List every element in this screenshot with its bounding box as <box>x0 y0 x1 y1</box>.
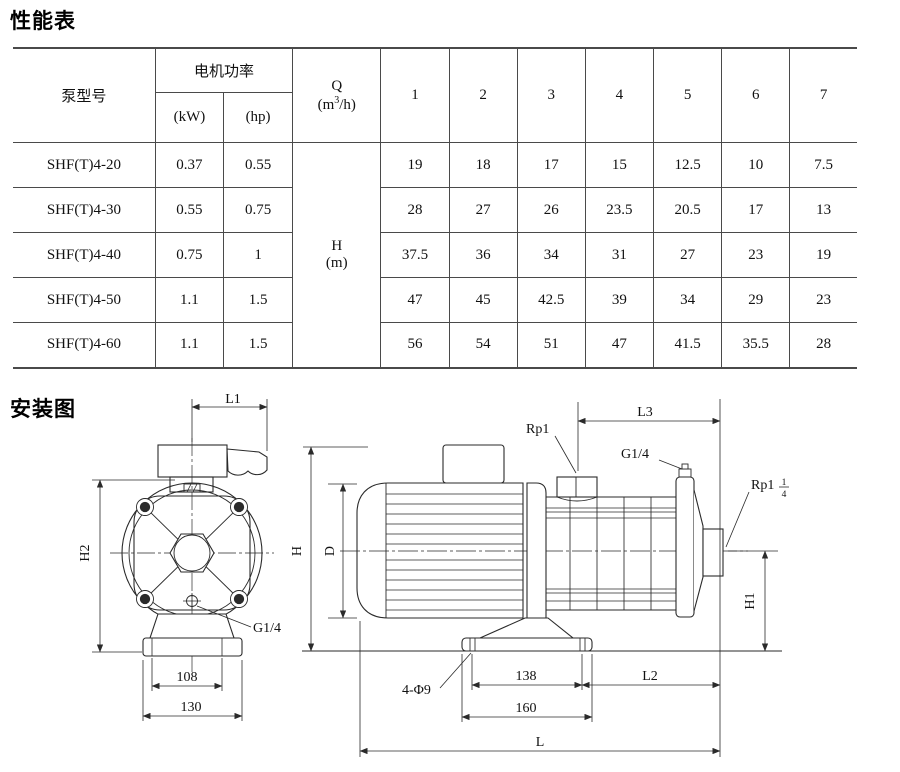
head-cell: 34 <box>653 278 721 323</box>
head-cell: 56 <box>381 323 449 368</box>
model-cell: SHF(T)4-60 <box>13 323 155 368</box>
dim-label-h1: H1 <box>743 592 758 609</box>
front-pedestal <box>150 614 234 638</box>
pump-front-view <box>110 438 274 672</box>
front-base-plate <box>143 638 242 656</box>
datasheet-page: { "performance": { "title": "性能表", "tabl… <box>0 0 900 772</box>
dim-label-g14-side: G1/4 <box>621 447 649 462</box>
dim-label-l2: L2 <box>642 669 658 684</box>
front-terminal-box <box>158 445 227 477</box>
head-cell: 42.5 <box>517 278 585 323</box>
hp-cell: 0.75 <box>223 188 292 233</box>
flow-col-header: 4 <box>585 48 653 143</box>
head-cell: 45 <box>449 278 517 323</box>
flow-q-header: Q (m3/h) <box>293 48 381 143</box>
side-suction-port <box>557 477 597 501</box>
side-base-plate <box>462 638 592 651</box>
side-pump-casing <box>546 497 678 610</box>
table-row: SHF(T)4-300.550.7528272623.520.51713 <box>13 188 857 233</box>
dim-label-rp1-quarter: Rp1 1 4 <box>751 478 789 500</box>
side-end-cover <box>676 477 694 617</box>
side-g14-plug <box>679 464 691 477</box>
head-cell: 27 <box>653 233 721 278</box>
head-cell: 34 <box>517 233 585 278</box>
table-row: SHF(T)4-400.75137.5363431272319 <box>13 233 857 278</box>
head-cell: 19 <box>790 233 857 278</box>
head-cell: 15 <box>585 143 653 188</box>
dim-label-l1: L1 <box>225 392 241 407</box>
kw-cell: 1.1 <box>155 278 223 323</box>
kw-cell: 1.1 <box>155 323 223 368</box>
head-cell: 29 <box>722 278 790 323</box>
model-cell: SHF(T)4-40 <box>13 233 155 278</box>
dim-label-138: 138 <box>516 669 537 684</box>
head-cell: 12.5 <box>653 143 721 188</box>
flow-col-header: 3 <box>517 48 585 143</box>
head-cell: 54 <box>449 323 517 368</box>
head-cell: 27 <box>449 188 517 233</box>
flow-col-header: 5 <box>653 48 721 143</box>
hp-cell: 1.5 <box>223 278 292 323</box>
flow-col-header: 7 <box>790 48 857 143</box>
dim-label-108: 108 <box>177 670 198 685</box>
side-terminal-box <box>443 445 504 483</box>
dim-label-4-phi9: 4-Φ9 <box>402 683 431 698</box>
flow-col-header: 6 <box>722 48 790 143</box>
head-cell: 18 <box>449 143 517 188</box>
head-cell: 17 <box>722 188 790 233</box>
head-cell: 51 <box>517 323 585 368</box>
pump-side-view <box>302 445 782 651</box>
model-column-header: 泵型号 <box>13 48 155 143</box>
head-cell: 17 <box>517 143 585 188</box>
flow-col-header: 1 <box>381 48 449 143</box>
head-cell: 28 <box>790 323 857 368</box>
dim-label-l3: L3 <box>637 405 653 420</box>
dim-label-h2: H2 <box>78 544 93 561</box>
kw-cell: 0.75 <box>155 233 223 278</box>
table-row: SHF(T)4-501.11.5474542.539342923 <box>13 278 857 323</box>
kw-cell: 0.55 <box>155 188 223 233</box>
kw-cell: 0.37 <box>155 143 223 188</box>
svg-text:Rp1: Rp1 <box>751 478 774 493</box>
head-cell: 41.5 <box>653 323 721 368</box>
head-cell: 39 <box>585 278 653 323</box>
svg-text:1: 1 <box>782 478 787 488</box>
side-motor-body <box>357 483 523 618</box>
side-adapter-flange <box>527 483 546 618</box>
side-motor-fins <box>386 494 523 610</box>
head-cell: 47 <box>585 323 653 368</box>
installation-diagram: L1 H2 G1/4 108 130 <box>0 390 900 772</box>
q-symbol: Q <box>331 78 342 94</box>
head-cell: 23.5 <box>585 188 653 233</box>
side-discharge-taper <box>694 490 703 611</box>
head-cell: 13 <box>790 188 857 233</box>
dim-label-h: H <box>290 546 305 556</box>
head-cell: 28 <box>381 188 449 233</box>
dim-label-l: L <box>536 735 545 750</box>
hp-cell: 1 <box>223 233 292 278</box>
side-foot <box>480 618 573 638</box>
head-cell: 20.5 <box>653 188 721 233</box>
model-cell: SHF(T)4-30 <box>13 188 155 233</box>
dim-label-160: 160 <box>516 701 537 716</box>
head-cell: 23 <box>722 233 790 278</box>
kw-header: (kW) <box>155 93 223 143</box>
head-cell: 23 <box>790 278 857 323</box>
head-cell: 36 <box>449 233 517 278</box>
motor-power-header: 电机功率 <box>155 48 292 93</box>
model-cell: SHF(T)4-20 <box>13 143 155 188</box>
hp-cell: 0.55 <box>223 143 292 188</box>
table-row: SHF(T)4-200.370.55H(m)1918171512.5107.5 <box>13 143 857 188</box>
head-cell: 35.5 <box>722 323 790 368</box>
svg-text:4: 4 <box>782 490 787 500</box>
front-center-hex-nut <box>170 534 214 572</box>
table-row: SHF(T)4-601.11.55654514741.535.528 <box>13 323 857 368</box>
performance-table: 泵型号 电机功率 Q (m3/h) 1234567 (kW) (hp) SHF(… <box>13 47 857 369</box>
head-cell: 26 <box>517 188 585 233</box>
header-row-1: 泵型号 电机功率 Q (m3/h) 1234567 <box>13 48 857 93</box>
hp-cell: 1.5 <box>223 323 292 368</box>
performance-table-title: 性能表 <box>10 5 76 35</box>
front-cable-gland <box>227 449 267 475</box>
dim-label-rp1: Rp1 <box>526 422 549 437</box>
head-cell: 19 <box>381 143 449 188</box>
head-cell: 10 <box>722 143 790 188</box>
head-cell: 47 <box>381 278 449 323</box>
dim-label-d: D <box>323 546 338 556</box>
head-cell: 7.5 <box>790 143 857 188</box>
hp-header: (hp) <box>223 93 292 143</box>
dim-label-g14-front: G1/4 <box>253 621 281 636</box>
dim-label-130: 130 <box>181 700 202 715</box>
head-cell: 31 <box>585 233 653 278</box>
head-cell: 37.5 <box>381 233 449 278</box>
performance-table-body: SHF(T)4-200.370.55H(m)1918171512.5107.5S… <box>13 143 857 368</box>
flow-col-header: 2 <box>449 48 517 143</box>
model-cell: SHF(T)4-50 <box>13 278 155 323</box>
head-unit-cell: H(m) <box>293 143 381 368</box>
